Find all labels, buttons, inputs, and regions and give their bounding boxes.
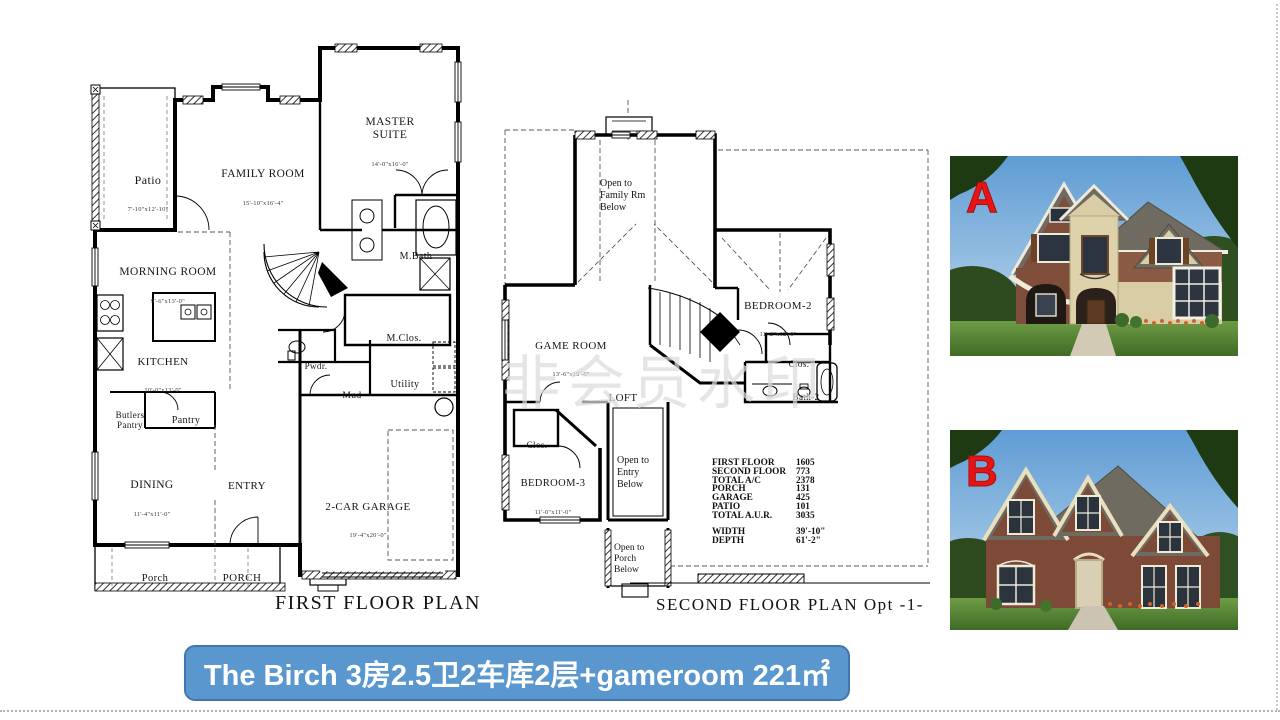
room-label-patio: Patio 7'-10"x12'-10" xyxy=(128,156,169,231)
table-row: TOTAL A.U.R.3035 xyxy=(712,512,815,521)
house-b-illustration: B xyxy=(950,430,1238,630)
room-label-bedroom3: BEDROOM-3 11'-0"x11'-0" xyxy=(521,460,586,534)
room-label-loft: LOFT xyxy=(608,374,637,422)
room-label-pwdr: Pwdr. xyxy=(305,343,328,389)
label-open-to-porch: Open to Porch Below xyxy=(614,543,644,577)
room-label-garage: 2-CAR GARAGE 19'-4"x20'-0" xyxy=(325,483,410,557)
room-label-mud: Mud xyxy=(342,373,361,419)
room-label-master-suite: MASTER SUITE 14'-0"x16'-0" xyxy=(365,98,414,186)
room-label-bath2: Bath-2 xyxy=(793,374,820,420)
size-stats-table: WIDTH39'-10" DEPTH61'-2" xyxy=(712,528,825,547)
flyer-slide: Patio 7'-10"x12'-10" FAMILY ROOM 15'-10"… xyxy=(0,0,1280,720)
second-floor-plan-title: SECOND FLOOR PLAN Opt -1- xyxy=(656,595,924,615)
title-banner: The Birch 3房2.5卫2车库2层+gameroom 221㎡ xyxy=(184,645,850,701)
house-a-illustration: A xyxy=(950,156,1238,356)
room-label-utility: Utility xyxy=(391,361,420,408)
room-label-morning-room: MORNING ROOM 9'-6"x13'-0" xyxy=(119,248,216,323)
room-label-mbath: M.Bath xyxy=(400,233,433,280)
title-banner-text: The Birch 3房2.5卫2车库2层+gameroom 221㎡ xyxy=(204,652,830,694)
room-label-butlers-pantry: Butlers Pantry xyxy=(116,392,145,448)
area-stats-table: FIRST FLOOR1605 SECOND FLOOR773 TOTAL A/… xyxy=(712,459,815,521)
room-label-family-room: FAMILY ROOM 15'-10"x16'-4" xyxy=(221,150,304,225)
room-label-porch-center: PORCH xyxy=(223,554,262,602)
room-label-game-room: GAME ROOM 13'-6"x15'-6" xyxy=(535,322,607,396)
photo-b-label: B xyxy=(966,447,998,496)
photo-a-label: A xyxy=(966,173,998,222)
house-photo-b: B xyxy=(950,430,1238,630)
room-label-entry: ENTRY xyxy=(228,462,266,510)
house-photo-a: A xyxy=(950,156,1238,356)
room-label-pantry: Pantry xyxy=(172,397,201,444)
label-open-to-entry: Open to Entry Below xyxy=(617,455,649,490)
room-label-porch-left: Porch xyxy=(142,555,169,603)
table-row: DEPTH61'-2" xyxy=(712,537,825,546)
right-dotted-border xyxy=(1276,4,1278,710)
label-open-to-family: Open to Family Rm Below xyxy=(600,178,645,213)
bottom-dotted-border xyxy=(0,710,1280,712)
first-floor-plan-title: FIRST FLOOR PLAN xyxy=(275,592,481,615)
room-label-mclos: M.Clos. xyxy=(386,315,421,362)
room-label-dining: DINING 11'-4"x11'-0" xyxy=(130,461,173,536)
